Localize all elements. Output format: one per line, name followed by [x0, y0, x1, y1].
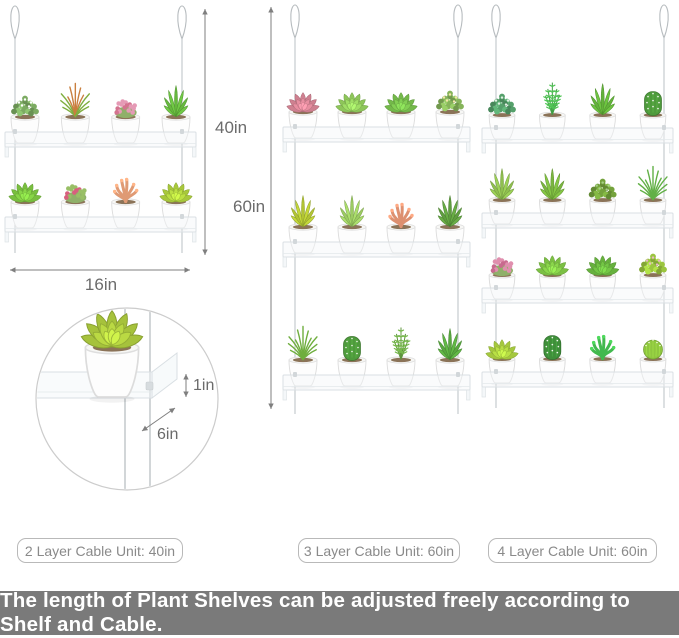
cable-connector: [456, 372, 460, 377]
caption-2-layer-unit: 2 Layer Cable Unit: 40in: [17, 538, 183, 563]
lip-dimension-1in: 1in: [193, 378, 214, 394]
acrylic-shelf: [482, 369, 673, 397]
cable-connector: [13, 129, 17, 134]
plant-flowers: [491, 257, 514, 276]
plant-aloe: [163, 86, 189, 118]
plant-cactus: [645, 92, 662, 116]
caption-4-layer-unit: 4 Layer Cable Unit: 60in: [488, 538, 657, 563]
cable-connector: [180, 214, 184, 219]
plant-fern: [544, 83, 561, 115]
cable-connector: [662, 285, 666, 290]
plant-coral: [590, 335, 615, 359]
plant-ball: [644, 339, 663, 359]
detail-zoom-circle: [22, 308, 218, 491]
dimension-arrow: [10, 267, 190, 272]
acrylic-shelf: [482, 285, 673, 313]
plant-aloe: [437, 196, 463, 228]
cable-connector: [662, 125, 666, 130]
acrylic-shelf: [283, 124, 470, 152]
dimension-16in-arrow: [10, 267, 190, 272]
plant-bush: [639, 254, 667, 275]
cable-connector: [662, 210, 666, 215]
plant-aloe: [339, 196, 365, 228]
dimension-40in-arrow: [202, 9, 207, 255]
hanging-cable-loop: [454, 5, 462, 38]
cable-connector: [293, 239, 297, 244]
hanging-cable-loop: [660, 5, 668, 38]
height-dimension-60in: 60in: [233, 198, 265, 215]
plant-coral: [113, 178, 138, 202]
cable-connector: [494, 285, 498, 290]
cable-connector: [494, 125, 498, 130]
cable-connector: [456, 124, 460, 129]
plant-aloe: [290, 196, 316, 228]
hanging-cable-loop: [11, 6, 19, 39]
plant-aloe: [437, 329, 463, 361]
banner-text: The length of Plant Shelves can be adjus…: [0, 589, 679, 637]
plant-bush: [436, 91, 464, 112]
cable-connector: [494, 369, 498, 374]
depth-dimension-6in: 6in: [157, 427, 178, 443]
plant-fern: [392, 328, 409, 360]
plant-flowers: [114, 99, 137, 118]
shelf-unit-3-layer: [283, 5, 470, 414]
dimension-arrow: [202, 9, 207, 255]
cable-connector: [494, 210, 498, 215]
plant-cactus: [344, 337, 361, 361]
acrylic-shelf: [283, 372, 470, 400]
cable-connector: [456, 239, 460, 244]
plant-flowers: [64, 184, 87, 203]
caption-3-layer-unit: 3 Layer Cable Unit: 60in: [298, 538, 460, 563]
plant-grass: [61, 84, 89, 117]
hanging-cable-loop: [291, 5, 299, 38]
acrylic-shelf: [5, 214, 196, 242]
acrylic-shelf: [5, 129, 196, 157]
banner: The length of Plant Shelves can be adjus…: [0, 591, 679, 635]
shelf-unit-2-layer: [5, 6, 196, 253]
plant-grass: [638, 167, 666, 200]
cable-connector: [180, 129, 184, 134]
cable-connector: [13, 214, 17, 219]
width-dimension-16in: 16in: [77, 276, 125, 293]
shelf-unit-4-layer: [482, 5, 673, 408]
cable-connector: [293, 372, 297, 377]
plant-bush: [488, 94, 516, 115]
acrylic-shelf: [482, 125, 673, 153]
plant-aloe: [590, 84, 616, 116]
acrylic-shelf: [482, 210, 673, 238]
plant-bush: [589, 179, 617, 200]
hanging-cable-loop: [492, 5, 500, 38]
plant-aloe: [539, 169, 565, 201]
hanging-cable-loop: [178, 6, 186, 39]
cable-connector: [293, 124, 297, 129]
plant-aloe: [489, 169, 515, 201]
dimension-arrow: [268, 7, 273, 409]
plant-coral: [388, 203, 413, 227]
plant-cactus: [544, 336, 561, 360]
plant-shelf-infographic: 40in 60in 16in 1in 6in 2 Layer Cable Uni…: [0, 0, 679, 638]
detail-cable-connector: [146, 382, 153, 390]
cable-connector: [662, 369, 666, 374]
acrylic-shelf: [283, 239, 470, 267]
height-dimension-40in: 40in: [215, 119, 247, 136]
dimension-60in-arrow: [268, 7, 273, 409]
plant-grass: [288, 327, 316, 360]
